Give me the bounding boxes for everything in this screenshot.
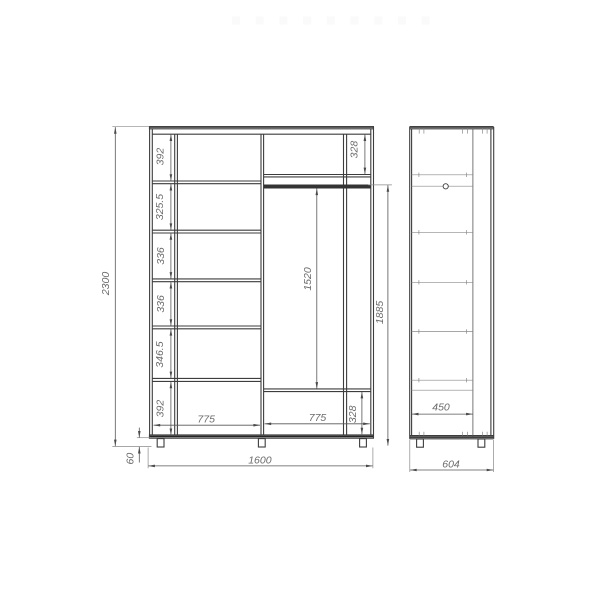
svg-text:328: 328 [347, 405, 359, 423]
svg-text:336: 336 [155, 295, 167, 313]
svg-text:1600: 1600 [248, 454, 272, 466]
svg-text:325.5: 325.5 [154, 194, 166, 220]
svg-text:1520: 1520 [302, 267, 314, 291]
svg-text:336: 336 [155, 247, 167, 265]
svg-text:392: 392 [154, 400, 166, 418]
svg-text:60: 60 [125, 453, 137, 465]
svg-text:2300: 2300 [100, 272, 112, 297]
svg-text:604: 604 [442, 458, 460, 470]
svg-text:450: 450 [432, 402, 450, 414]
svg-text:1885: 1885 [374, 301, 386, 325]
svg-text:775: 775 [197, 413, 215, 425]
svg-text:775: 775 [309, 412, 327, 424]
svg-text:346.5: 346.5 [154, 341, 166, 367]
svg-text:328: 328 [349, 141, 361, 159]
svg-text:392: 392 [154, 148, 166, 166]
